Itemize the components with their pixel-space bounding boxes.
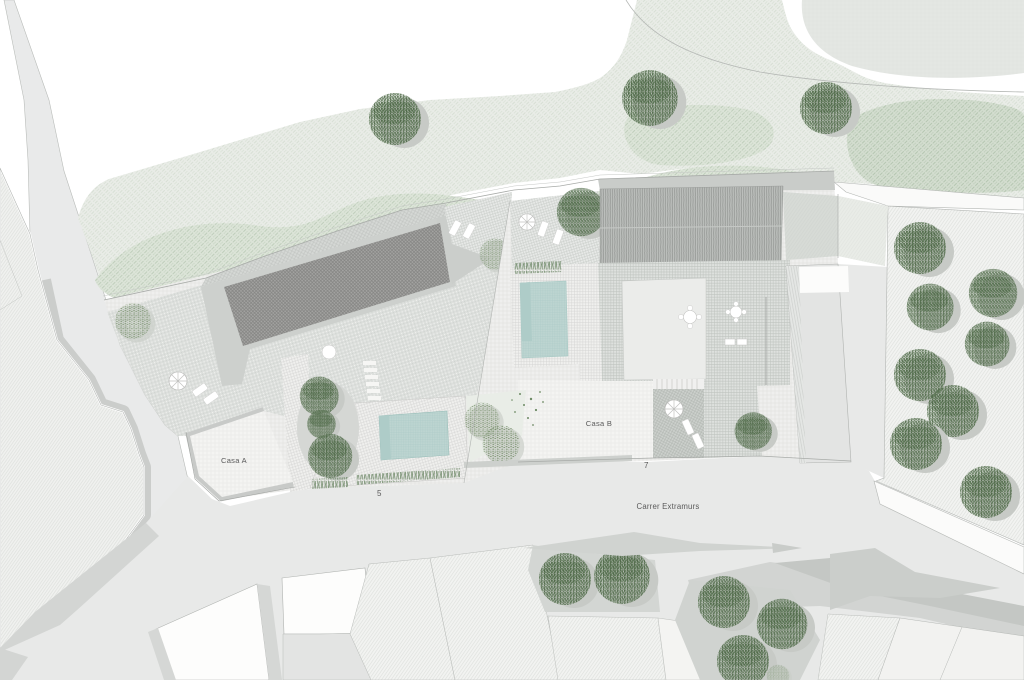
svg-text:Casa B: Casa B xyxy=(586,419,612,428)
svg-text:7: 7 xyxy=(644,461,649,470)
svg-text:Casa A: Casa A xyxy=(221,456,247,465)
svg-text:Carrer Extramurs: Carrer Extramurs xyxy=(637,502,700,511)
svg-text:5: 5 xyxy=(377,489,382,498)
